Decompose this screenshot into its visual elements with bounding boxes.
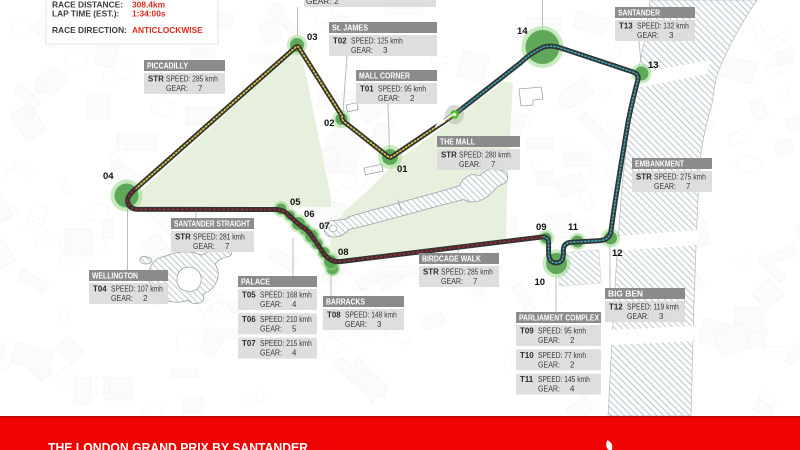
svg-text:7: 7 — [686, 182, 690, 191]
svg-text:7: 7 — [225, 242, 229, 251]
svg-text:GEAR:: GEAR: — [441, 277, 463, 286]
svg-text:11: 11 — [568, 222, 579, 233]
svg-text:T06: T06 — [242, 315, 256, 324]
svg-text:2: 2 — [570, 360, 574, 369]
svg-text:GEAR:: GEAR: — [306, 0, 331, 6]
svg-text:THE LONDON GRAND PRIX BY SANTA: THE LONDON GRAND PRIX BY SANTANDER — [48, 441, 308, 450]
svg-text:MALL CORNER: MALL CORNER — [359, 71, 411, 81]
svg-text:14: 14 — [517, 26, 528, 37]
svg-text:SPEED: 125 kmh: SPEED: 125 kmh — [351, 37, 403, 46]
svg-text:T10: T10 — [520, 351, 534, 360]
svg-text:T12: T12 — [609, 303, 623, 312]
svg-text:09: 09 — [536, 222, 547, 233]
svg-text:07: 07 — [319, 221, 330, 232]
svg-text:EMBANKMENT: EMBANKMENT — [635, 159, 685, 169]
svg-text:4: 4 — [570, 385, 575, 394]
svg-text:4: 4 — [292, 300, 297, 309]
svg-text:SPEED: 210 kmh: SPEED: 210 kmh — [260, 315, 312, 324]
svg-text:WELLINGTON: WELLINGTON — [92, 271, 138, 281]
svg-text:3: 3 — [383, 46, 388, 55]
svg-text:SPEED: 285 kmh: SPEED: 285 kmh — [166, 75, 218, 84]
svg-text:SANTANDER STRAIGHT: SANTANDER STRAIGHT — [174, 219, 251, 229]
svg-text:T09: T09 — [520, 327, 534, 336]
svg-text:T05: T05 — [242, 291, 256, 300]
svg-text:GEAR:: GEAR: — [193, 242, 215, 251]
svg-text:SPEED: 275 kmh: SPEED: 275 kmh — [654, 173, 706, 182]
svg-text:12: 12 — [612, 248, 623, 259]
svg-text:STR: STR — [423, 268, 439, 277]
svg-text:03: 03 — [307, 32, 318, 43]
svg-text:3: 3 — [377, 320, 382, 329]
svg-text:BIRDCAGE WALK: BIRDCAGE WALK — [422, 254, 482, 264]
svg-text:STR: STR — [441, 151, 457, 160]
svg-text:3: 3 — [669, 31, 674, 40]
svg-text:7: 7 — [198, 84, 202, 93]
svg-text:T01: T01 — [360, 85, 374, 94]
svg-text:T02: T02 — [333, 37, 347, 46]
svg-text:SPEED: 280 kmh: SPEED: 280 kmh — [459, 151, 511, 160]
svg-text:LAP TIME (EST.):: LAP TIME (EST.): — [52, 9, 119, 19]
svg-text:SPEED: 285 kmh: SPEED: 285 kmh — [441, 268, 493, 277]
svg-text:GEAR:: GEAR: — [459, 160, 481, 169]
svg-text:T04: T04 — [93, 285, 107, 294]
svg-text:01: 01 — [397, 164, 408, 175]
svg-text:SPEED: 281 kmh: SPEED: 281 kmh — [193, 233, 245, 242]
svg-text:GEAR:: GEAR: — [538, 385, 560, 394]
svg-text:T08: T08 — [327, 311, 341, 320]
svg-text:SPEED: 168 kmh: SPEED: 168 kmh — [260, 291, 312, 300]
svg-text:STR: STR — [148, 75, 164, 84]
svg-text:GEAR:: GEAR: — [260, 300, 282, 309]
svg-text:4: 4 — [292, 349, 297, 358]
svg-text:2: 2 — [334, 0, 339, 6]
svg-text:SPEED: 148 kmh: SPEED: 148 kmh — [345, 311, 397, 320]
svg-text:RACE DIRECTION:: RACE DIRECTION: — [52, 25, 127, 35]
svg-text:BARRACKS: BARRACKS — [326, 297, 365, 307]
svg-text:STR: STR — [636, 173, 652, 182]
svg-text:3: 3 — [659, 312, 664, 321]
svg-text:T13: T13 — [619, 22, 633, 31]
svg-text:5: 5 — [292, 324, 297, 333]
svg-text:2: 2 — [143, 294, 147, 303]
svg-text:SPEED: 107 kmh: SPEED: 107 kmh — [111, 285, 163, 294]
svg-text:ANTICLOCKWISE: ANTICLOCKWISE — [132, 25, 203, 35]
svg-text:04: 04 — [103, 171, 114, 182]
svg-text:1:34:00s: 1:34:00s — [132, 9, 166, 19]
svg-text:SPEED: 215 kmh: SPEED: 215 kmh — [260, 339, 312, 348]
svg-text:06: 06 — [304, 209, 315, 220]
svg-text:2: 2 — [570, 336, 574, 345]
svg-text:SPEED: 95 kmh: SPEED: 95 kmh — [378, 85, 426, 94]
svg-text:SANTANDER: SANTANDER — [618, 8, 661, 18]
svg-text:GEAR:: GEAR: — [260, 349, 282, 358]
svg-text:10: 10 — [535, 277, 546, 288]
svg-text:GEAR:: GEAR: — [627, 312, 649, 321]
svg-text:GEAR:: GEAR: — [166, 84, 188, 93]
svg-text:7: 7 — [473, 277, 477, 286]
svg-text:St. JAMES: St. JAMES — [332, 23, 368, 33]
svg-text:SPEED: 77 kmh: SPEED: 77 kmh — [538, 351, 586, 360]
svg-text:GEAR:: GEAR: — [538, 336, 560, 345]
svg-text:PICCADILLY: PICCADILLY — [147, 61, 188, 71]
svg-text:SPEED: 145 kmh: SPEED: 145 kmh — [538, 375, 590, 384]
svg-text:BIG BEN: BIG BEN — [608, 289, 643, 299]
svg-text:GEAR:: GEAR: — [538, 360, 560, 369]
svg-text:SPEED: 119 kmh: SPEED: 119 kmh — [627, 303, 679, 312]
svg-text:T11: T11 — [520, 375, 534, 384]
svg-text:02: 02 — [324, 118, 335, 129]
svg-text:2: 2 — [410, 94, 414, 103]
svg-text:GEAR:: GEAR: — [351, 46, 373, 55]
svg-text:GEAR:: GEAR: — [260, 324, 282, 333]
svg-text:SPEED: 132 kmh: SPEED: 132 kmh — [637, 22, 689, 31]
svg-text:PALACE: PALACE — [241, 277, 270, 287]
svg-text:GEAR:: GEAR: — [378, 94, 400, 103]
svg-text:GEAR:: GEAR: — [111, 294, 133, 303]
svg-text:13: 13 — [648, 60, 659, 71]
svg-text:SPEED: 95 kmh: SPEED: 95 kmh — [538, 327, 586, 336]
svg-text:THE MALL: THE MALL — [440, 137, 475, 147]
svg-text:STR: STR — [175, 233, 191, 242]
svg-text:7: 7 — [491, 160, 495, 169]
svg-text:GEAR:: GEAR: — [345, 320, 367, 329]
svg-text:08: 08 — [338, 247, 349, 258]
svg-text:05: 05 — [290, 197, 301, 208]
svg-text:GEAR:: GEAR: — [654, 182, 676, 191]
svg-text:T07: T07 — [242, 339, 256, 348]
svg-text:PARLIAMENT COMPLEX: PARLIAMENT COMPLEX — [519, 313, 599, 323]
svg-text:GEAR:: GEAR: — [637, 31, 659, 40]
